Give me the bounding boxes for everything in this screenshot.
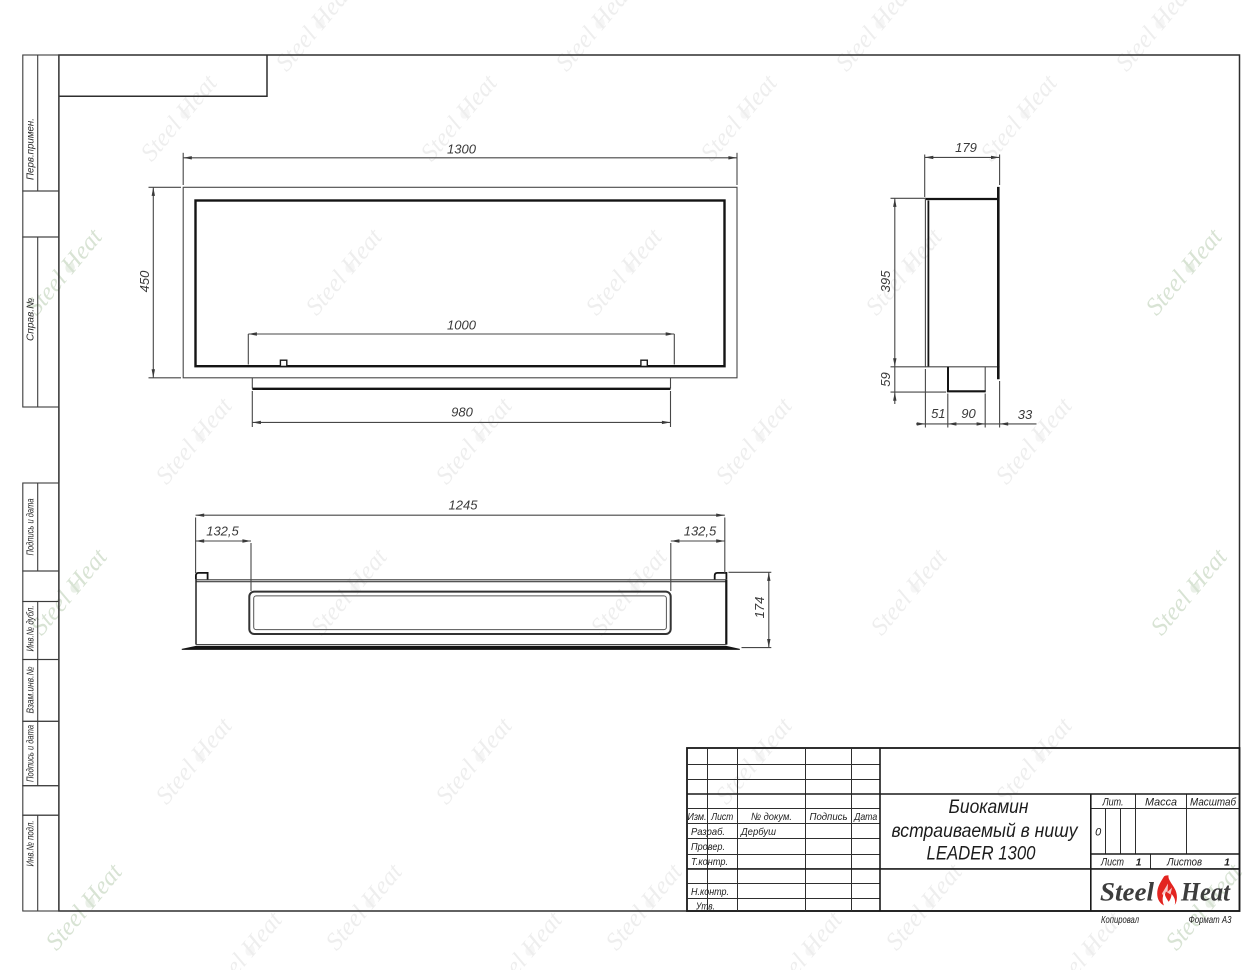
svg-text:174: 174	[752, 597, 767, 619]
svg-text:1: 1	[1224, 856, 1230, 868]
svg-text:0: 0	[1095, 827, 1102, 839]
svg-text:132,5: 132,5	[206, 524, 239, 539]
svg-text:Утв.: Утв.	[695, 901, 715, 913]
svg-text:Формат А3: Формат А3	[1189, 915, 1232, 926]
svg-text:Подпись и дата: Подпись и дата	[26, 498, 37, 555]
svg-text:59: 59	[878, 372, 893, 386]
svg-text:Масса: Масса	[1145, 796, 1177, 808]
svg-text:Изм.: Изм.	[688, 811, 707, 823]
svg-text:Дербуш: Дербуш	[740, 826, 776, 838]
svg-text:Копировал: Копировал	[1101, 915, 1139, 926]
svg-text:132,5: 132,5	[684, 524, 717, 539]
svg-text:встраиваемый в нишу: встраиваемый в нишу	[892, 821, 1079, 842]
svg-text:179: 179	[955, 140, 977, 155]
svg-text:Heat: Heat	[1180, 878, 1231, 907]
svg-text:1245: 1245	[449, 498, 479, 513]
svg-text:51: 51	[931, 406, 945, 421]
svg-text:1: 1	[1136, 856, 1142, 868]
svg-text:Разраб.: Разраб.	[691, 826, 725, 838]
svg-text:Справ.№: Справ.№	[26, 298, 37, 341]
svg-text:Лист: Лист	[710, 811, 733, 823]
svg-text:395: 395	[878, 270, 893, 292]
svg-text:Листов: Листов	[1166, 857, 1202, 869]
svg-text:33: 33	[1018, 407, 1033, 422]
svg-text:1000: 1000	[447, 318, 477, 333]
svg-text:Подпись: Подпись	[810, 811, 848, 823]
svg-text:Подпись и дата: Подпись и дата	[26, 725, 37, 782]
svg-text:№ докум.: № докум.	[751, 811, 792, 823]
svg-text:Взам.инв.№: Взам.инв.№	[26, 666, 37, 713]
svg-text:Лист: Лист	[1100, 857, 1124, 869]
svg-text:Дата: Дата	[853, 811, 877, 823]
svg-text:Провер.: Провер.	[691, 841, 725, 853]
svg-text:Steel: Steel	[1100, 878, 1155, 907]
svg-text:LEADER 1300: LEADER 1300	[927, 844, 1036, 865]
svg-text:980: 980	[451, 404, 473, 419]
svg-text:450: 450	[137, 270, 152, 292]
svg-text:Масштаб: Масштаб	[1190, 796, 1237, 808]
svg-text:Лит.: Лит.	[1102, 796, 1124, 808]
svg-text:Инв.№ подл.: Инв.№ подл.	[26, 821, 37, 867]
svg-text:90: 90	[961, 406, 976, 421]
svg-text:Н.контр.: Н.контр.	[691, 886, 729, 898]
svg-text:Т.контр.: Т.контр.	[691, 856, 728, 868]
svg-text:Перв.примен.: Перв.примен.	[26, 118, 37, 180]
svg-text:Инв.№ дубл.: Инв.№ дубл.	[25, 606, 37, 652]
svg-text:Биокамин: Биокамин	[949, 797, 1029, 818]
svg-text:1300: 1300	[447, 141, 477, 156]
